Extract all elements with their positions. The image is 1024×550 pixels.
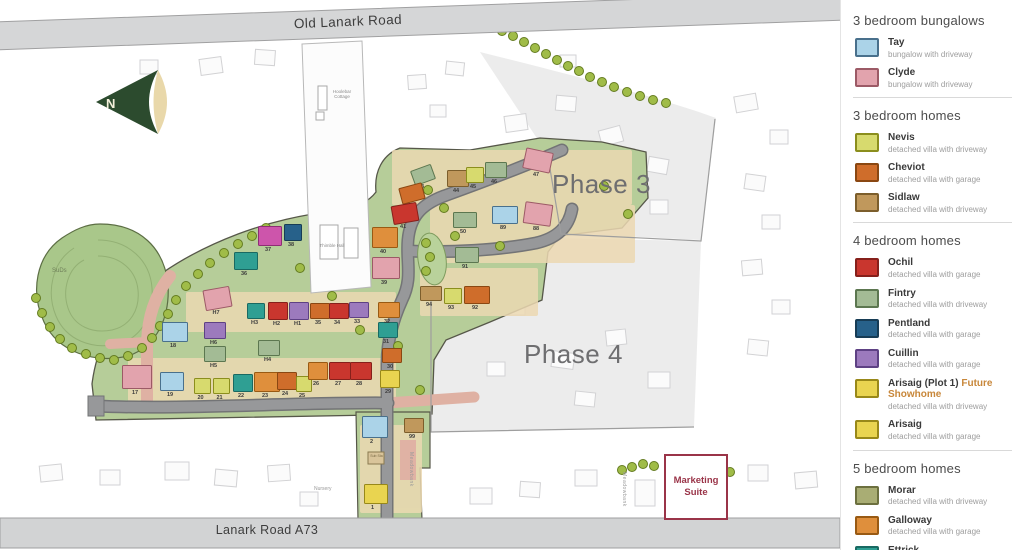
house-type-name: Ettrick xyxy=(888,545,1007,550)
marketing-suite-label-line1: Marketing xyxy=(674,475,719,487)
house-type-description: detached villa with garage xyxy=(888,360,981,370)
marketing-suite-label-line2: Suite xyxy=(684,487,707,499)
sidlaw-house-icon xyxy=(855,193,879,212)
plot-number: 1 xyxy=(371,506,374,512)
plot-number: 22 xyxy=(238,394,244,400)
legend-section: 4 bedroom homesOchildetached villa with … xyxy=(853,233,1014,441)
plot-24 xyxy=(277,372,297,390)
fintry-house-icon xyxy=(855,289,879,308)
plot-1 xyxy=(364,484,388,504)
legend-item-pentland: Pentlanddetached villa with garage xyxy=(855,318,1014,340)
site-plan-map: N 43424140394445464789885091929394383736… xyxy=(0,0,840,550)
plot-number: 40 xyxy=(380,250,386,256)
marketing-suite: Marketing Suite xyxy=(664,454,728,520)
legend-sections: 3 bedroom bungalowsTaybungalow with driv… xyxy=(853,13,1014,550)
plot-number: 25 xyxy=(299,394,305,400)
street-label: Meadowbank xyxy=(621,472,627,507)
morar-house-icon xyxy=(855,486,879,505)
plot-27 xyxy=(329,362,351,380)
plot-number: 17 xyxy=(132,391,138,397)
plot-number: 35 xyxy=(315,321,321,327)
house-type-description: detached villa with driveway xyxy=(888,205,987,215)
cuillin-house-icon xyxy=(855,349,879,368)
legend-item-text: Ochildetached villa with garage xyxy=(888,257,981,279)
plot-number: 20 xyxy=(198,396,204,402)
plot-34 xyxy=(329,303,349,319)
legend-item-nevis: Nevisdetached villa with driveway xyxy=(855,132,1014,154)
plot-92 xyxy=(464,286,490,304)
house-type-description: detached villa with driveway xyxy=(888,145,987,155)
legend-item-text: Morardetached villa with driveway xyxy=(888,485,987,507)
plot-H2 xyxy=(268,302,288,320)
plot-number: 92 xyxy=(472,306,478,312)
plot-number: H3 xyxy=(251,321,258,327)
plot-37 xyxy=(258,226,282,246)
legend-item-text: Clydebungalow with driveway xyxy=(888,67,973,89)
legend-item-text: Taybungalow with driveway xyxy=(888,37,973,59)
plot-20 xyxy=(194,378,211,394)
plot-number: H2 xyxy=(273,322,280,328)
plot-number: 23 xyxy=(262,394,268,400)
house-type-description: detached villa with garage xyxy=(888,270,981,280)
house-type-name: Clyde xyxy=(888,67,973,79)
cheviot-house-icon xyxy=(855,163,879,182)
plot-45 xyxy=(466,167,484,183)
legend-section: 5 bedroom homesMorardetached villa with … xyxy=(853,461,1014,550)
house-type-description: bungalow with driveway xyxy=(888,50,973,60)
plot-number: 50 xyxy=(460,230,466,236)
plot-42 xyxy=(398,182,426,205)
plot-number: 2 xyxy=(370,440,373,446)
house-type-name: Morar xyxy=(888,485,987,497)
plot-41 xyxy=(391,202,420,225)
legend-item-arisaig: Arisaigdetached villa with garage xyxy=(855,419,1014,441)
plot-number: 44 xyxy=(453,189,459,195)
plot-26 xyxy=(308,362,328,380)
legend-sidebar: 3 bedroom bungalowsTaybungalow with driv… xyxy=(840,0,1024,550)
legend-section: 3 bedroom homesNevisdetached villa with … xyxy=(853,108,1014,214)
house-type-name: Ochil xyxy=(888,257,981,269)
plot-40 xyxy=(372,227,398,248)
plot-28 xyxy=(350,362,372,380)
plot-93 xyxy=(444,288,462,304)
plot-number: 93 xyxy=(448,306,454,312)
pentland-house-icon xyxy=(855,319,879,338)
legend-section-title: 3 bedroom bungalows xyxy=(853,13,1014,28)
ettrick-house-icon xyxy=(855,546,879,550)
plot-29 xyxy=(380,370,400,388)
plot-number: 30 xyxy=(387,365,393,371)
house-type-description: detached villa with garage xyxy=(888,175,981,185)
tay-house-icon xyxy=(855,38,879,57)
legend-section-title: 5 bedroom homes xyxy=(853,461,1014,476)
plot-number: 21 xyxy=(217,396,223,402)
legend-item-ochil: Ochildetached villa with garage xyxy=(855,257,1014,279)
plot-17 xyxy=(122,365,152,389)
plot-43 xyxy=(410,164,436,187)
plot-22 xyxy=(233,374,253,392)
arisaig-house-icon xyxy=(855,420,879,439)
plot-38 xyxy=(284,224,302,241)
thimble-hall-label: Thimble Hall xyxy=(316,244,348,249)
bottom-road-label: Lanark Road A73 xyxy=(152,524,382,538)
house-type-description: detached villa with driveway xyxy=(888,300,987,310)
house-type-name: Tay xyxy=(888,37,973,49)
legend-item-clyde: Clydebungalow with driveway xyxy=(855,67,1014,89)
plot-35 xyxy=(310,303,330,319)
house-type-description: detached villa with driveway xyxy=(888,497,987,507)
ochil-house-icon xyxy=(855,258,879,277)
plot-94 xyxy=(420,286,442,301)
plot-36 xyxy=(234,252,258,270)
plot-88 xyxy=(523,201,554,227)
plot-number: 33 xyxy=(354,320,360,326)
plot-number: 47 xyxy=(533,173,539,179)
plot-number: 34 xyxy=(334,321,340,327)
house-type-name: Fintry xyxy=(888,288,987,300)
plot-H7 xyxy=(202,286,232,311)
plot-number: 91 xyxy=(462,265,468,271)
legend-item-text: Sidlawdetached villa with driveway xyxy=(888,192,987,214)
plot-number: H5 xyxy=(210,364,217,370)
future-showhome-badge: Future Showhome xyxy=(888,378,992,401)
legend-item-galloway: Gallowaydetached villa with garage xyxy=(855,515,1014,537)
plot-number: 26 xyxy=(313,382,319,388)
legend-item-tay: Taybungalow with driveway xyxy=(855,37,1014,59)
plot-number: 99 xyxy=(409,435,415,441)
clyde-house-icon xyxy=(855,68,879,87)
plot-19 xyxy=(160,372,184,391)
plot-32 xyxy=(378,302,400,318)
plot-number: 94 xyxy=(426,303,432,309)
cottage-label-line2: Cottage xyxy=(327,95,357,100)
nursery-label: Nursery xyxy=(314,487,332,493)
plot-18 xyxy=(162,322,188,342)
plot-number: 32 xyxy=(384,320,390,326)
phase3-label: Phase 3 xyxy=(552,170,692,199)
house-type-name: Nevis xyxy=(888,132,987,144)
house-type-description: detached villa with garage xyxy=(888,432,981,442)
legend-divider xyxy=(853,97,1012,98)
plot-H1 xyxy=(289,302,309,320)
suds-label: SuDs xyxy=(52,268,67,275)
house-type-name: Arisaig xyxy=(888,419,981,431)
house-type-description: detached villa with garage xyxy=(888,527,981,537)
plot-H3 xyxy=(247,303,265,319)
legend-divider xyxy=(853,450,1012,451)
plot-number: H4 xyxy=(264,358,271,364)
plot-89 xyxy=(492,206,518,224)
plot-99 xyxy=(404,418,424,433)
plot-number: 19 xyxy=(167,393,173,399)
legend-divider xyxy=(853,222,1012,223)
plot-46 xyxy=(485,162,507,178)
plot-33 xyxy=(349,302,369,318)
legend-section-title: 4 bedroom homes xyxy=(853,233,1014,248)
plot-number: 31 xyxy=(383,340,389,346)
plot-number: 89 xyxy=(500,226,506,232)
legend-item-text: Arisaig (Plot 1) Future Showhomedetached… xyxy=(888,378,1014,412)
plot-number: 38 xyxy=(288,243,294,249)
nevis-house-icon xyxy=(855,133,879,152)
plot-number: 29 xyxy=(385,390,391,396)
legend-item-text: Cuillindetached villa with garage xyxy=(888,348,981,370)
legend-item-cuillin: Cuillindetached villa with garage xyxy=(855,348,1014,370)
phase4-label: Phase 4 xyxy=(524,340,664,369)
house-type-description: detached villa with driveway xyxy=(888,402,1014,412)
plot-number: H1 xyxy=(294,322,301,328)
plot-number: 36 xyxy=(241,272,247,278)
plot-47 xyxy=(522,147,554,173)
legend-item-text: Pentlanddetached villa with garage xyxy=(888,318,981,340)
arisaig-house-icon xyxy=(855,379,879,398)
street-label: Meadowbank xyxy=(408,452,414,487)
legend-item-text: Cheviotdetached villa with garage xyxy=(888,162,981,184)
legend-item-text: Gallowaydetached villa with garage xyxy=(888,515,981,537)
house-type-name: Sidlaw xyxy=(888,192,987,204)
plot-number: 37 xyxy=(265,248,271,254)
legend-item-text: Nevisdetached villa with driveway xyxy=(888,132,987,154)
plot-number: 28 xyxy=(356,382,362,388)
legend-item-text: Fintrydetached villa with driveway xyxy=(888,288,987,310)
plot-H6 xyxy=(204,322,226,339)
plot-number: 88 xyxy=(533,227,539,233)
plot-21 xyxy=(213,378,230,394)
plot-number: 41 xyxy=(400,225,406,231)
house-type-description: detached villa with garage xyxy=(888,330,981,340)
legend-item-text: Ettrickdetached villa with double garage xyxy=(888,545,1007,550)
plot-number: 46 xyxy=(491,180,497,186)
legend-section: 3 bedroom bungalowsTaybungalow with driv… xyxy=(853,13,1014,89)
house-type-name: Cheviot xyxy=(888,162,981,174)
plot-number: 45 xyxy=(470,185,476,191)
legend-item-text: Arisaigdetached villa with garage xyxy=(888,419,981,441)
legend-item-arisaig-plot-1-: Arisaig (Plot 1) Future Showhomedetached… xyxy=(855,378,1014,412)
legend-item-morar: Morardetached villa with driveway xyxy=(855,485,1014,507)
plot-number: 27 xyxy=(335,382,341,388)
substation-label: Sub Sta xyxy=(369,455,384,459)
house-type-name: Cuillin xyxy=(888,348,981,360)
house-type-description: bungalow with driveway xyxy=(888,80,973,90)
plot-number: H7 xyxy=(213,311,220,317)
plot-2 xyxy=(362,416,388,438)
legend-section-title: 3 bedroom homes xyxy=(853,108,1014,123)
plot-number: 39 xyxy=(381,281,387,287)
plot-50 xyxy=(453,212,477,228)
legend-item-ettrick: Ettrickdetached villa with double garage xyxy=(855,545,1014,550)
plot-H5 xyxy=(204,346,226,362)
cottage-label: Hoolebar Cottage xyxy=(327,90,357,100)
plot-number: 18 xyxy=(170,344,176,350)
plot-91 xyxy=(455,247,479,263)
plot-number: 24 xyxy=(282,392,288,398)
house-type-name: Pentland xyxy=(888,318,981,330)
plot-H4 xyxy=(258,340,280,356)
legend-item-cheviot: Cheviotdetached villa with garage xyxy=(855,162,1014,184)
legend-item-fintry: Fintrydetached villa with driveway xyxy=(855,288,1014,310)
plot-39 xyxy=(372,257,400,279)
galloway-house-icon xyxy=(855,516,879,535)
development-site-plan: N 43424140394445464789885091929394383736… xyxy=(0,0,1024,550)
plot-30 xyxy=(382,348,402,363)
legend-item-sidlaw: Sidlawdetached villa with driveway xyxy=(855,192,1014,214)
house-type-name: Galloway xyxy=(888,515,981,527)
house-type-name: Arisaig (Plot 1) Future Showhome xyxy=(888,378,1014,401)
